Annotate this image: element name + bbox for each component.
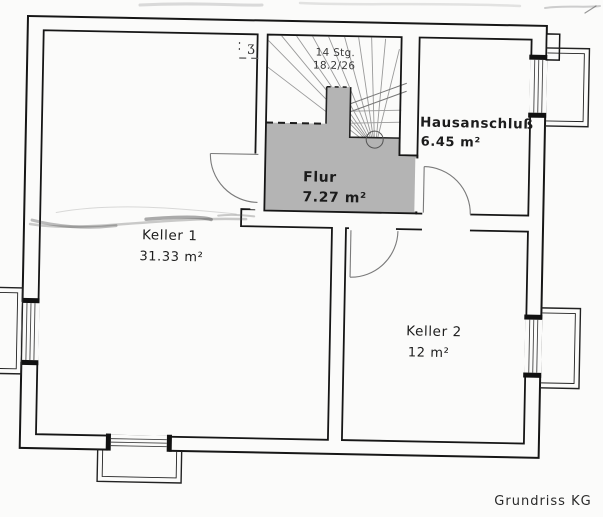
room-area-flur: 7.27 m² (302, 189, 367, 206)
room-label-keller2: Keller 2 (406, 323, 462, 340)
room-area-keller2: 12 m² (408, 345, 450, 361)
room-label-hausanschluss: Hausanschluß (420, 115, 534, 133)
corner-pier (546, 34, 559, 60)
floor-plan-sheet: ʒ 14 Stg. 18.2/26 Keller 1 31.33 m² Flur… (0, 0, 603, 517)
corner-mark-glyph: ʒ (247, 40, 255, 55)
floor-plan-drawing: ʒ 14 Stg. 18.2/26 Keller 1 31.33 m² Flur… (0, 0, 603, 517)
room-label-flur: Flur (303, 169, 337, 186)
room-area-hausanschluss: 6.45 m² (421, 135, 481, 151)
stair-dimension-label: 18.2/26 (313, 59, 356, 72)
stair-count-label: 14 Stg. (315, 46, 355, 59)
room-label-keller1: Keller 1 (142, 227, 198, 244)
plan-title: Grundriss KG (494, 494, 591, 509)
room-area-keller1: 31.33 m² (139, 249, 203, 265)
